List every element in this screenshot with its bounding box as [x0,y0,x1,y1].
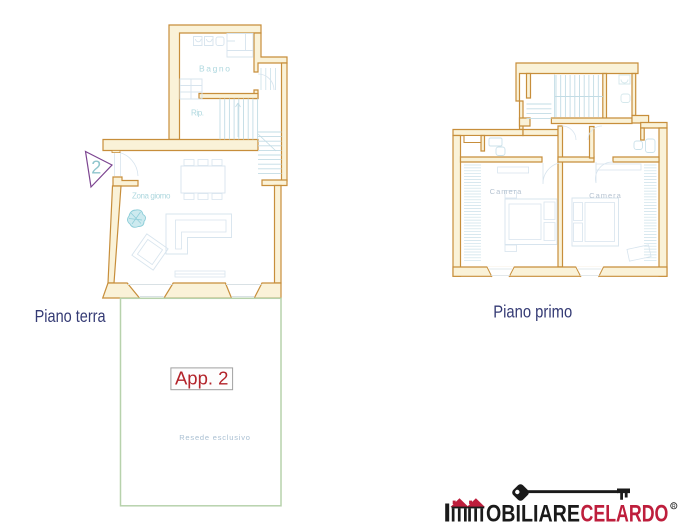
svg-text:OBILIARE: OBILIARE [486,500,580,525]
svg-text:2: 2 [91,158,101,178]
svg-text:App. 2: App. 2 [175,368,229,389]
svg-text:Piano terra: Piano terra [35,306,106,326]
svg-text:Bagno: Bagno [199,64,230,74]
svg-text:Camera: Camera [490,187,523,196]
svg-text:R: R [672,504,676,510]
svg-text:Rip.: Rip. [191,109,204,118]
svg-text:Piano primo: Piano primo [493,302,572,322]
svg-text:CELARDO: CELARDO [581,501,669,525]
svg-text:Camera: Camera [589,191,622,200]
svg-text:Resede esclusivo: Resede esclusivo [179,433,251,442]
svg-text:Zona giorno: Zona giorno [132,192,171,201]
